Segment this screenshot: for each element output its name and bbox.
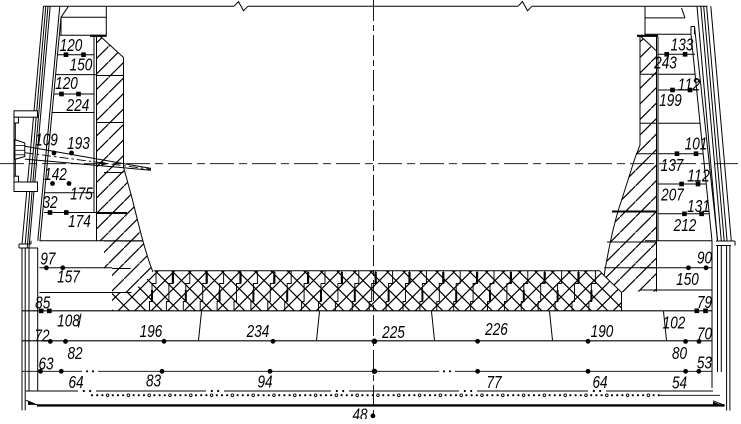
svg-text:77: 77 [486, 372, 502, 392]
svg-text:175: 175 [70, 184, 93, 204]
svg-text:72: 72 [34, 326, 49, 346]
svg-text:108: 108 [57, 311, 80, 331]
svg-text:97: 97 [40, 248, 56, 268]
svg-text:80: 80 [672, 343, 687, 363]
svg-text:193: 193 [67, 133, 90, 153]
svg-text:133: 133 [671, 35, 694, 55]
svg-text:199: 199 [659, 90, 682, 110]
svg-text:196: 196 [140, 321, 163, 341]
svg-text:90: 90 [697, 248, 712, 268]
svg-text:32: 32 [42, 192, 57, 212]
svg-text:64: 64 [68, 372, 83, 392]
svg-text:207: 207 [660, 185, 684, 205]
svg-text:48: 48 [352, 405, 367, 419]
svg-text:212: 212 [673, 215, 697, 235]
svg-text:190: 190 [591, 321, 614, 341]
svg-text:131: 131 [687, 196, 710, 216]
svg-text:225: 225 [381, 322, 405, 342]
svg-text:82: 82 [67, 343, 82, 363]
svg-text:120: 120 [60, 35, 83, 55]
svg-text:101: 101 [685, 134, 708, 154]
svg-text:150: 150 [676, 269, 699, 289]
svg-text:94: 94 [257, 372, 272, 392]
svg-text:83: 83 [146, 371, 161, 391]
svg-text:174: 174 [68, 211, 91, 231]
svg-text:54: 54 [672, 372, 687, 392]
svg-text:157: 157 [57, 267, 81, 287]
svg-text:120: 120 [55, 73, 78, 93]
svg-text:224: 224 [66, 95, 90, 115]
svg-text:102: 102 [663, 312, 686, 332]
svg-text:234: 234 [246, 321, 270, 341]
svg-text:243: 243 [653, 53, 677, 73]
svg-text:150: 150 [70, 55, 93, 75]
svg-text:109: 109 [35, 130, 58, 150]
svg-text:226: 226 [484, 319, 508, 339]
svg-text:142: 142 [44, 164, 67, 184]
svg-text:64: 64 [592, 372, 607, 392]
svg-text:137: 137 [661, 155, 685, 175]
